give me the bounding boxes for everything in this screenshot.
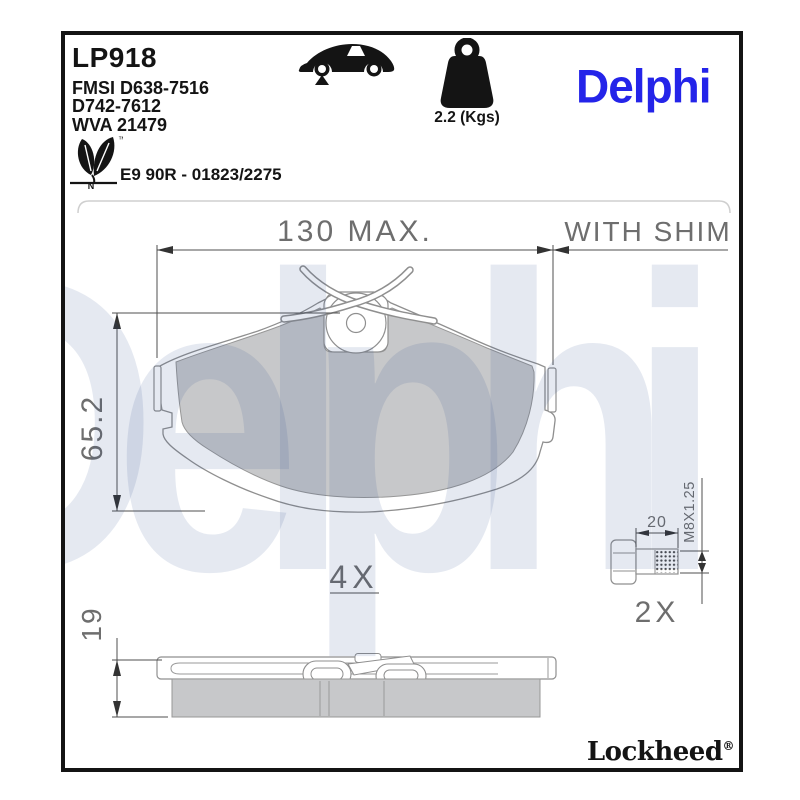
pad-quantity: 4X	[329, 559, 379, 595]
car-icon	[296, 40, 398, 86]
bolt-thread-label: M8X1.25	[682, 481, 698, 543]
trademark-symbol: ™	[118, 135, 123, 144]
ece-approval-number: E9 90R - 01823/2275	[120, 165, 282, 185]
boss-hole	[347, 314, 366, 333]
bolt-head	[611, 540, 636, 584]
with-shim-label: WITH SHIM	[564, 216, 731, 247]
bolt-quantity-label: 2X	[635, 596, 680, 629]
weight-value: 2.2 (Kgs)	[420, 109, 514, 127]
lockheed-logo-text: Lockheed	[587, 737, 723, 767]
datasheet-page: LP918 FMSI D638-7516 D742-7612 WVA 21479…	[0, 0, 800, 800]
height-dim-label: 65.2	[76, 395, 109, 461]
thickness-dim-label: 19	[76, 606, 107, 641]
brake-pad-front-view	[154, 269, 556, 512]
bolt-length-label: 20	[647, 514, 667, 531]
eco-letter: N	[88, 181, 95, 189]
bolt-thread	[655, 551, 678, 573]
brake-pad-side-view	[157, 654, 556, 718]
registered-trademark-symbol: ®	[723, 739, 735, 753]
pad-quantity-label: 4X	[329, 559, 378, 595]
drawing-panel-top-rule	[78, 201, 730, 213]
bolt-detail: 20 M8X1.25 2X	[611, 478, 709, 629]
thickness-dimension: 19	[76, 606, 168, 717]
fmsi-reference-line-2: D742-7612	[72, 96, 161, 117]
shim-edge	[548, 368, 556, 412]
front-axle-marker-icon	[315, 75, 329, 85]
width-dim-label: 130 MAX.	[277, 215, 433, 248]
friction-material-side	[172, 679, 540, 717]
delphi-logo: Delphi	[576, 58, 711, 113]
weight-icon	[438, 38, 496, 110]
lockheed-logo: Lockheed®	[587, 737, 734, 767]
left-abutment-tab	[154, 366, 161, 411]
part-number: LP918	[72, 42, 157, 74]
eco-leaf-icon: N ™	[69, 133, 123, 189]
